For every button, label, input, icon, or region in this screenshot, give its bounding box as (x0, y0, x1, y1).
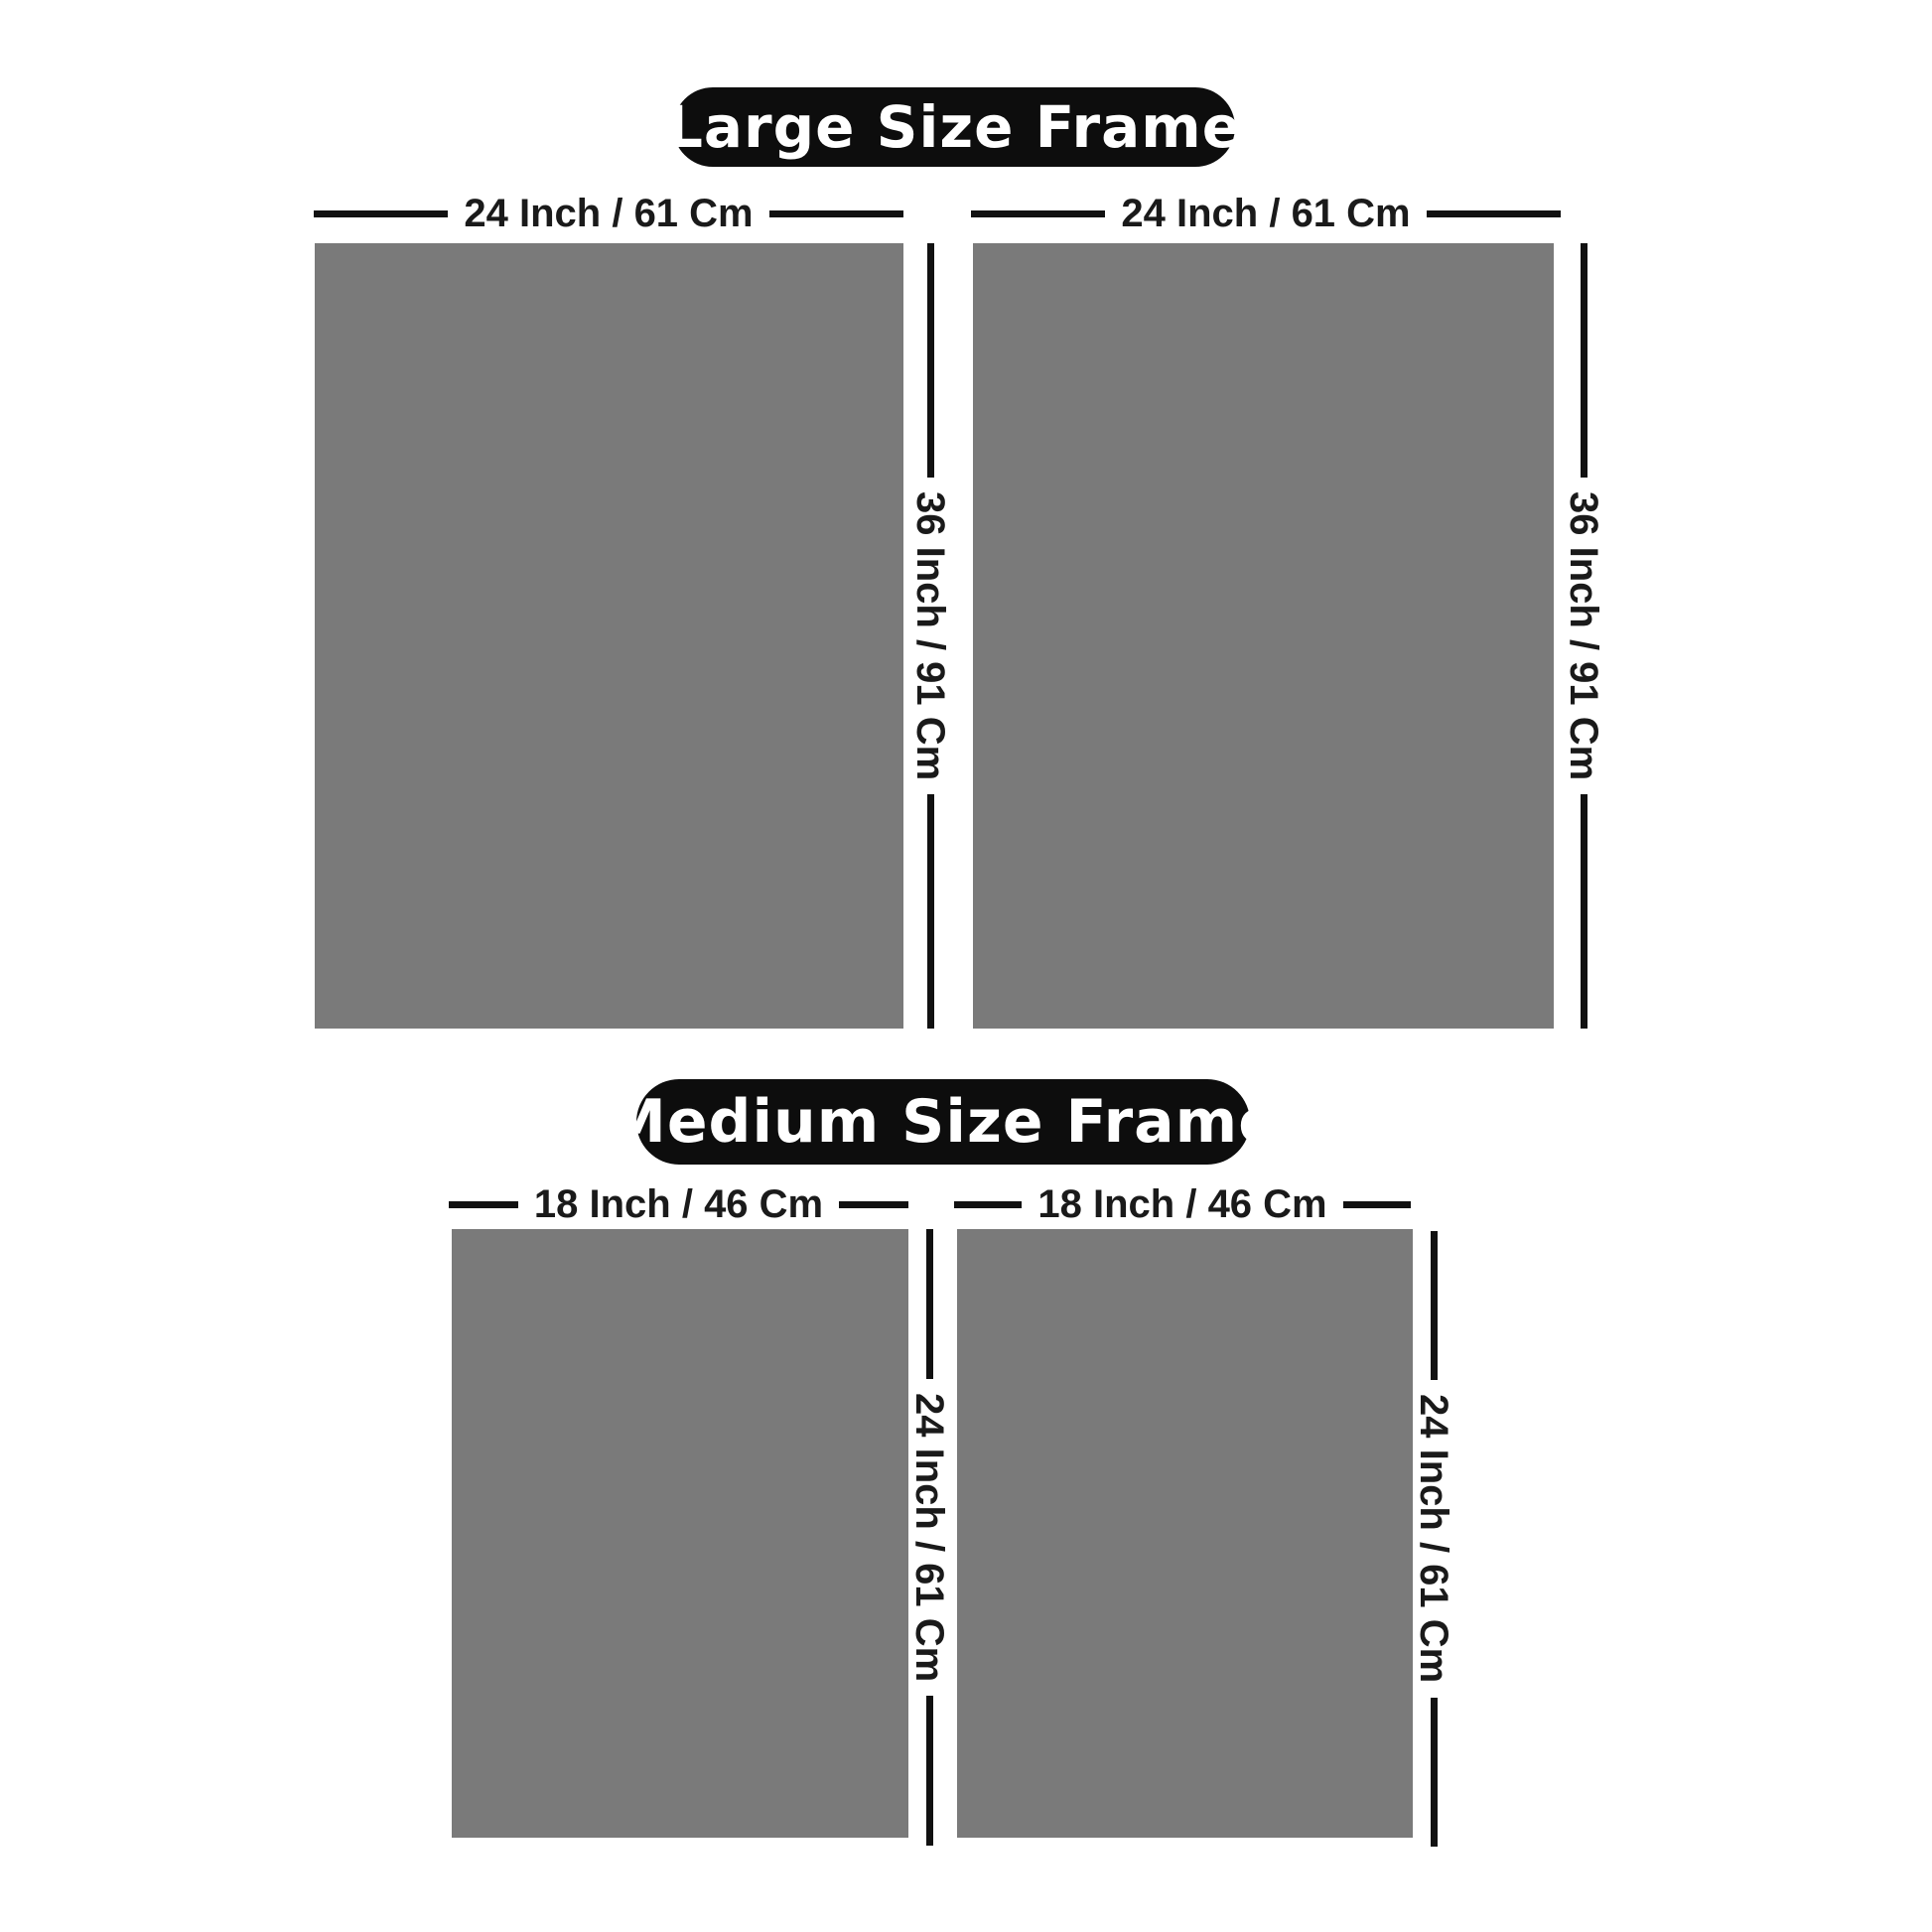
dimension-line-segment (314, 210, 448, 217)
dimension-line-segment (926, 1696, 933, 1846)
large-left-height-dimension: 36 Inch / 91 Cm (907, 243, 953, 1029)
large-section-title: Large Size Frame (666, 93, 1242, 161)
large-right-width-dimension: 24 Inch / 61 Cm (971, 191, 1561, 236)
dimension-line-segment (927, 243, 934, 478)
dimension-line-segment (1343, 1201, 1411, 1208)
large-right-width-label: 24 Inch / 61 Cm (1121, 194, 1410, 233)
medium-right-height-dimension: 24 Inch / 61 Cm (1411, 1231, 1456, 1847)
dimension-line-segment (1427, 210, 1561, 217)
medium-right-height-label: 24 Inch / 61 Cm (1414, 1394, 1453, 1683)
large-left-height-label: 36 Inch / 91 Cm (910, 491, 950, 780)
medium-left-width-dimension: 18 Inch / 46 Cm (449, 1181, 908, 1227)
medium-right-width-dimension: 18 Inch / 46 Cm (954, 1181, 1411, 1227)
large-frame-preview-right (973, 243, 1554, 1029)
dimension-line-segment (769, 210, 903, 217)
large-left-width-dimension: 24 Inch / 61 Cm (314, 191, 903, 236)
medium-left-width-label: 18 Inch / 46 Cm (534, 1184, 823, 1224)
dimension-line-segment (1431, 1698, 1438, 1847)
size-chart-canvas: Large Size Frame 24 Inch / 61 Cm 24 Inch… (0, 0, 1932, 1932)
dimension-line-segment (971, 210, 1105, 217)
medium-left-height-label: 24 Inch / 61 Cm (909, 1393, 949, 1682)
dimension-line-segment (839, 1201, 908, 1208)
medium-section-title: Medium Size Frame (607, 1087, 1280, 1157)
medium-section-title-pill: Medium Size Frame (636, 1079, 1250, 1165)
dimension-line-segment (927, 794, 934, 1029)
large-right-height-label: 36 Inch / 91 Cm (1564, 491, 1603, 780)
large-left-width-label: 24 Inch / 61 Cm (464, 194, 753, 233)
medium-right-width-label: 18 Inch / 46 Cm (1037, 1184, 1326, 1224)
large-frame-preview-left (315, 243, 903, 1029)
medium-frame-preview-left (452, 1229, 908, 1838)
large-right-height-dimension: 36 Inch / 91 Cm (1561, 243, 1606, 1029)
large-section-title-pill: Large Size Frame (673, 87, 1235, 167)
dimension-line-segment (954, 1201, 1022, 1208)
dimension-line-segment (1581, 794, 1587, 1029)
dimension-line-segment (1581, 243, 1587, 478)
dimension-line-segment (926, 1229, 933, 1379)
dimension-line-segment (449, 1201, 518, 1208)
medium-left-height-dimension: 24 Inch / 61 Cm (906, 1229, 952, 1846)
medium-frame-preview-right (957, 1229, 1413, 1838)
dimension-line-segment (1431, 1231, 1438, 1380)
